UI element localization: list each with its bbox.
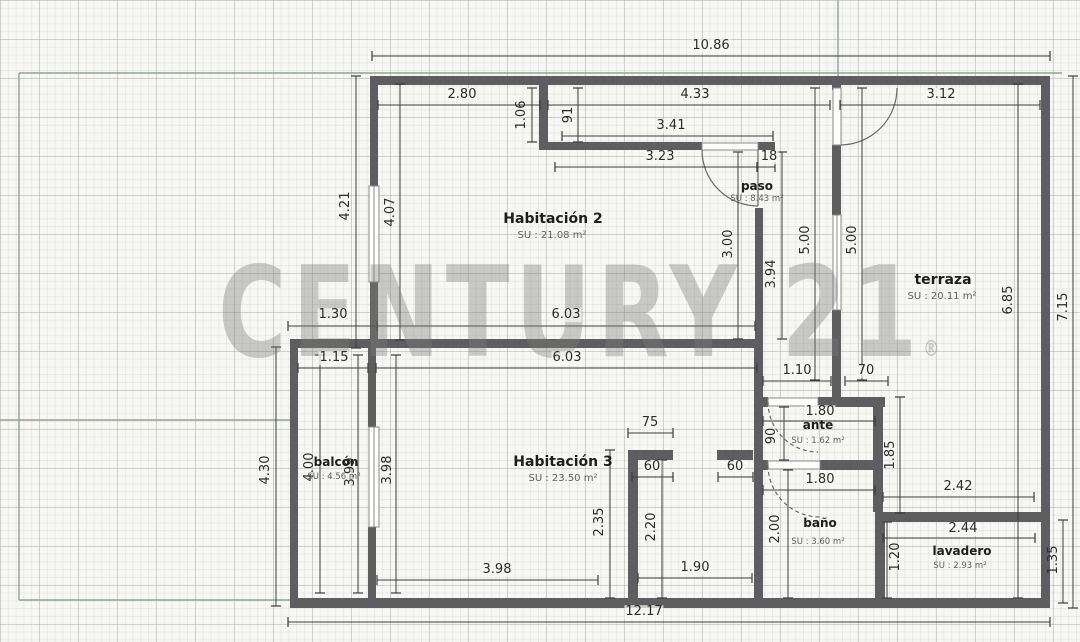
dimension-label: 1.30 (318, 308, 349, 322)
dimension-label: 12.17 (624, 605, 663, 619)
room-name: Habitación 2 (503, 212, 602, 226)
room-area: SU : 21.08 m² (518, 231, 587, 241)
dimension-label: 2.00 (769, 514, 783, 545)
dimension-label: 7.15 (1057, 292, 1071, 323)
dimension-label: 2.35 (593, 507, 607, 538)
dimension-label: 60 (726, 460, 745, 474)
dimension-label: 2.80 (447, 88, 478, 102)
dimension-label: 2.20 (645, 512, 659, 543)
dimension-label: 75 (641, 416, 660, 430)
dimension-label: 91 (562, 106, 576, 125)
dimension-label: 6.03 (551, 308, 582, 322)
dimension-label: 90 (765, 427, 779, 446)
dimension-label: 4.30 (259, 455, 273, 486)
dimension-label: 10.86 (691, 39, 730, 53)
labels-layer: 10.862.804.333.123.413.23181.306.031.156… (0, 0, 1080, 642)
room-area: SU : 3.60 m² (791, 538, 844, 547)
dimension-label: 3.23 (645, 150, 676, 164)
room-name: ante (803, 419, 834, 431)
dimension-label: 5.00 (799, 225, 813, 256)
dimension-label: 3.00 (722, 229, 736, 260)
room-name: paso (741, 180, 773, 192)
dimension-label: 6.85 (1002, 285, 1016, 316)
room-area: SU : 4.56 m² (307, 473, 360, 482)
dimension-label: 4.07 (384, 197, 398, 228)
dimension-label: 60 (643, 460, 662, 474)
room-area: SU : 1.62 m² (791, 437, 844, 446)
dimension-label: 5.00 (846, 225, 860, 256)
dimension-label: 1.80 (805, 473, 836, 487)
room-area: SU : 20.11 m² (908, 292, 977, 302)
room-name: Habitación 3 (513, 455, 612, 469)
dimension-label: 1.10 (782, 364, 813, 378)
dimension-label: 70 (857, 364, 876, 378)
room-name: baño (803, 517, 836, 529)
dimension-label: 3.98 (381, 455, 395, 486)
dimension-label: 6.03 (552, 351, 583, 365)
dimension-label: 4.21 (339, 191, 353, 222)
room-name: lavadero (932, 545, 991, 557)
dimension-label: 3.94 (765, 259, 779, 290)
dimension-label: 2.42 (943, 480, 974, 494)
room-area: SU : 8.43 m² (730, 195, 783, 204)
dimension-label: 1.85 (884, 440, 898, 471)
dimension-label: 1.06 (515, 100, 529, 131)
dimension-label: 1.35 (1047, 545, 1061, 576)
dimension-label: 2.44 (948, 522, 979, 536)
dimension-label: 4.33 (680, 88, 711, 102)
dimension-label: 18 (760, 150, 779, 164)
dimension-label: 1.20 (889, 542, 903, 573)
dimension-label: 3.12 (926, 88, 957, 102)
dimension-label: 1.90 (680, 561, 711, 575)
dimension-label: 3.98 (482, 563, 513, 577)
room-area: SU : 23.50 m² (529, 474, 598, 484)
dimension-label: 1.80 (805, 405, 836, 419)
dimension-label: 3.41 (656, 119, 687, 133)
room-name: balcón (314, 456, 359, 468)
room-name: terraza (914, 273, 971, 287)
dimension-label: 1.15 (319, 351, 350, 365)
floorplan-canvas: CENTURY 21® 10.862.804.333.123.413.23181… (0, 0, 1080, 642)
room-area: SU : 2.93 m² (933, 562, 986, 571)
